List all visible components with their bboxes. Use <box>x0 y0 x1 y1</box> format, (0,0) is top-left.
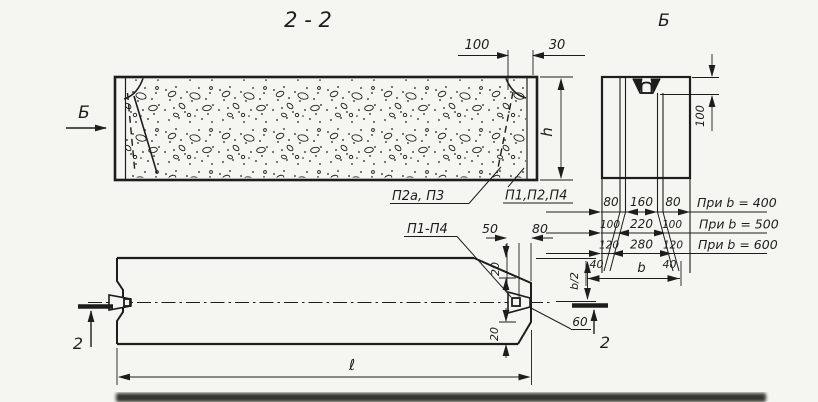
key-60-dimension: 60 <box>531 308 591 330</box>
section-title: 2 - 2 <box>284 8 332 32</box>
dim-100-label: 100 <box>465 38 490 53</box>
callout-p1-p2-p4: П1,П2,П4 <box>505 189 567 204</box>
panel-drawing-svg: 2 - 2 Б 100 30 <box>0 0 818 402</box>
dim-20-bottom-label: 20 <box>488 327 501 341</box>
cut-label-left: 2 <box>73 334 83 353</box>
dim-60-label: 60 <box>572 315 588 329</box>
lifting-loop-icon <box>642 83 652 94</box>
section-view: 2 - 2 Б 100 30 <box>66 8 585 204</box>
cut-label-right: 2 <box>600 333 610 352</box>
row2-center: 220 <box>630 217 653 231</box>
length-dimension: ℓ <box>117 330 532 385</box>
plan-outline <box>117 258 531 344</box>
row2-note: При b = 500 <box>699 217 779 232</box>
row1-note: При b = 400 <box>697 195 777 210</box>
dim-h-label: h <box>538 127 556 137</box>
row1-right: 80 <box>665 195 681 209</box>
plan-view: П1-П4 50 80 <box>73 221 610 385</box>
end-view-title: Б <box>658 11 670 31</box>
callout-p2a-p3: П2а, П3 <box>392 189 444 204</box>
scan-artifact-bar <box>116 393 766 402</box>
end-view: Б 100 <box>546 11 779 286</box>
row3-left: 120 <box>599 240 619 252</box>
callout-p1-p4: П1-П4 <box>407 222 448 237</box>
dim-recess-100-label: 100 <box>693 105 707 127</box>
row3-center: 280 <box>630 238 653 252</box>
dim-20-top-label: 20 <box>489 262 502 276</box>
cut-mark-left: 2 <box>73 307 113 354</box>
row3-note: При b = 600 <box>698 237 778 252</box>
row3-right: 120 <box>663 240 683 252</box>
engineering-drawing-sheet: 2 - 2 Б 100 30 <box>0 0 818 402</box>
row2-left: 100 <box>600 219 620 231</box>
bevel-right-label: 40 <box>663 258 677 271</box>
lifting-loop-recess <box>633 79 660 94</box>
bevel-left-label: 40 <box>590 258 604 271</box>
section-height-dimension: h <box>538 77 573 180</box>
half-width-dimension: b/2 <box>536 259 596 302</box>
concrete-texture <box>126 80 526 178</box>
dim-b2-label: b/2 <box>568 272 581 290</box>
row1-center: 160 <box>630 195 653 209</box>
view-direction-label: Б <box>78 103 90 123</box>
dim-length-label: ℓ <box>348 356 355 374</box>
dim-80-label: 80 <box>532 221 548 236</box>
dim-30-label: 30 <box>549 38 566 53</box>
row1-left: 80 <box>603 195 619 209</box>
row2-right: 100 <box>662 219 682 231</box>
dim-50-label: 50 <box>482 221 498 236</box>
key-dimensions: 50 80 <box>482 221 553 297</box>
dim-b-label: b <box>637 261 645 276</box>
width-table: 80 160 80 100 220 100 120 280 120 40 40 … <box>546 178 779 286</box>
